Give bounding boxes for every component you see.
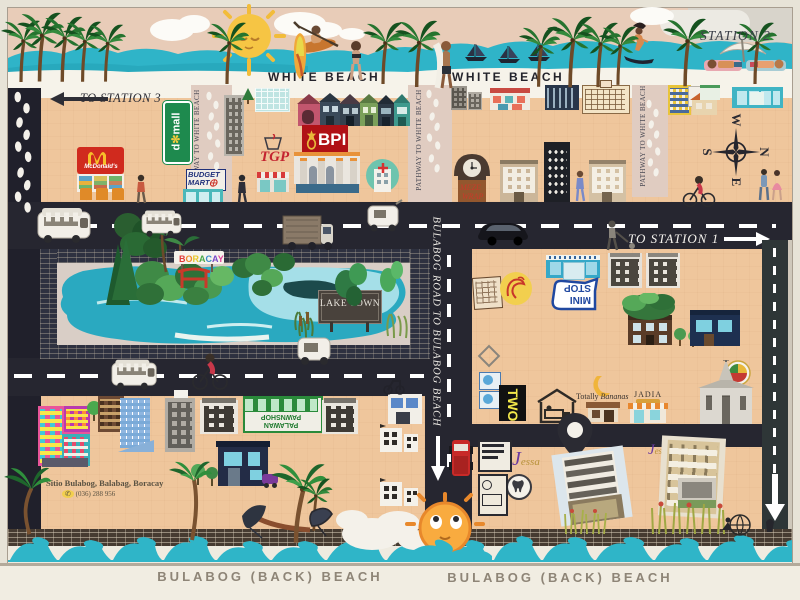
- svg-text:BORACAY: BORACAY: [179, 254, 224, 264]
